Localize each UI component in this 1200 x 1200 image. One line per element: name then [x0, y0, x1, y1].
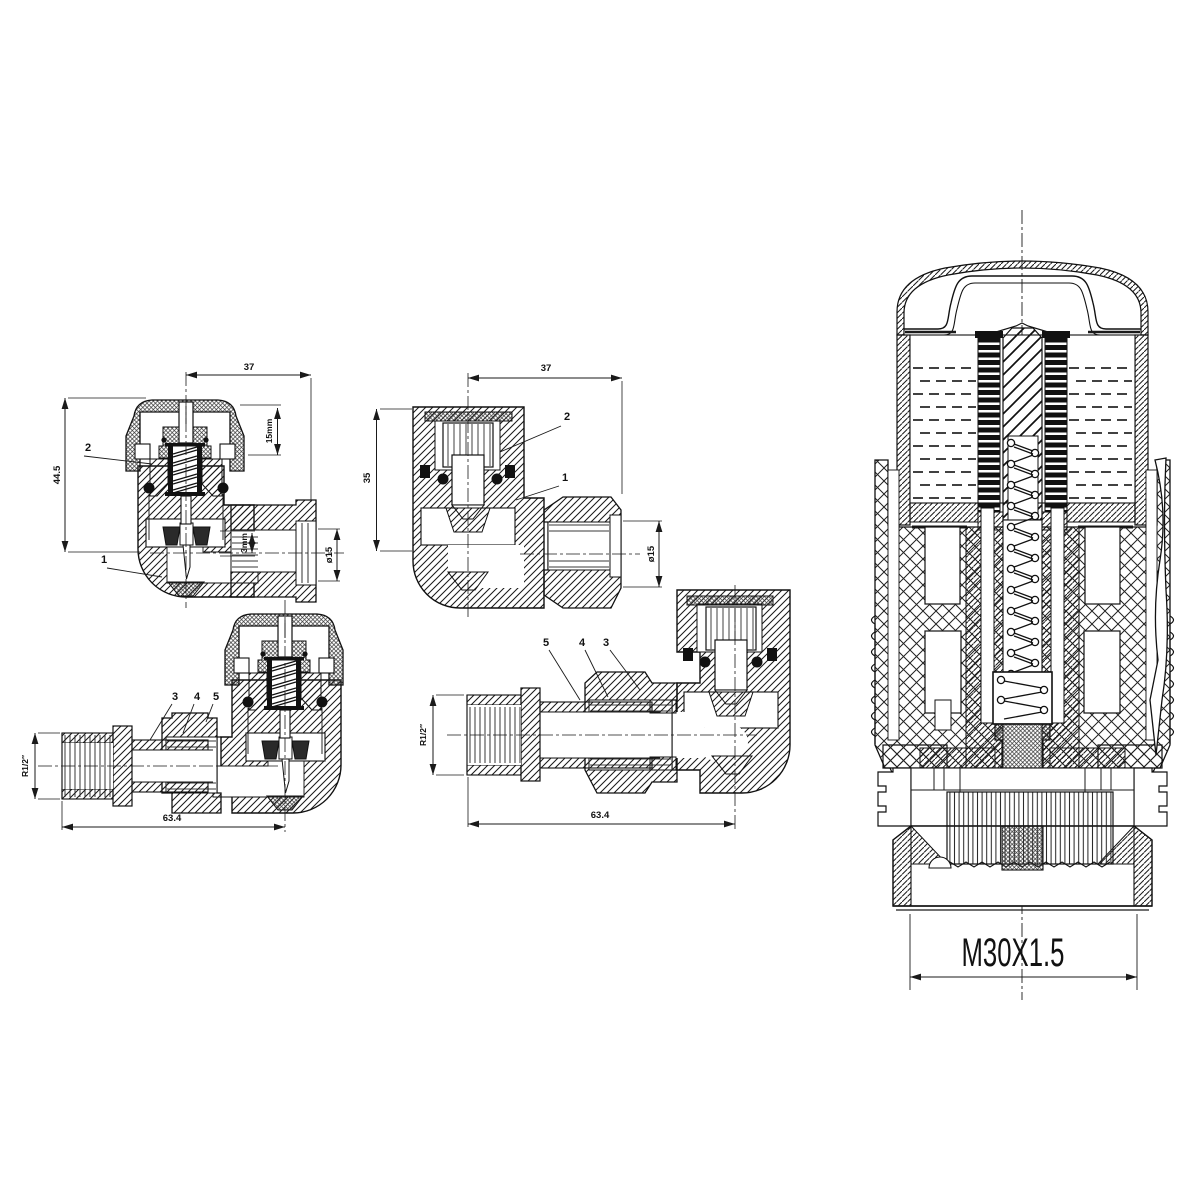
svg-text:4: 4 — [579, 637, 586, 649]
svg-text:5: 5 — [213, 691, 219, 703]
svg-text:15mm: 15mm — [264, 418, 274, 443]
svg-text:3: 3 — [603, 637, 609, 649]
svg-text:R1/2″: R1/2″ — [20, 755, 30, 777]
svg-text:M30X1.5: M30X1.5 — [962, 931, 1065, 975]
svg-text:R1/2″: R1/2″ — [418, 724, 428, 746]
svg-text:2: 2 — [564, 411, 570, 423]
svg-text:3mm: 3mm — [239, 533, 249, 553]
svg-text:ø15: ø15 — [646, 545, 657, 562]
svg-text:37: 37 — [244, 362, 255, 373]
svg-text:3: 3 — [172, 691, 178, 703]
svg-text:63.4: 63.4 — [163, 813, 182, 824]
svg-text:1: 1 — [101, 554, 107, 566]
svg-text:44.5: 44.5 — [52, 465, 63, 484]
svg-text:ø15: ø15 — [324, 546, 335, 563]
svg-text:4: 4 — [194, 691, 201, 703]
svg-text:1: 1 — [562, 472, 568, 484]
svg-text:35: 35 — [362, 472, 373, 483]
svg-text:37: 37 — [541, 363, 552, 374]
svg-text:5: 5 — [543, 637, 549, 649]
svg-text:63.4: 63.4 — [591, 810, 610, 821]
svg-text:2: 2 — [85, 442, 91, 454]
